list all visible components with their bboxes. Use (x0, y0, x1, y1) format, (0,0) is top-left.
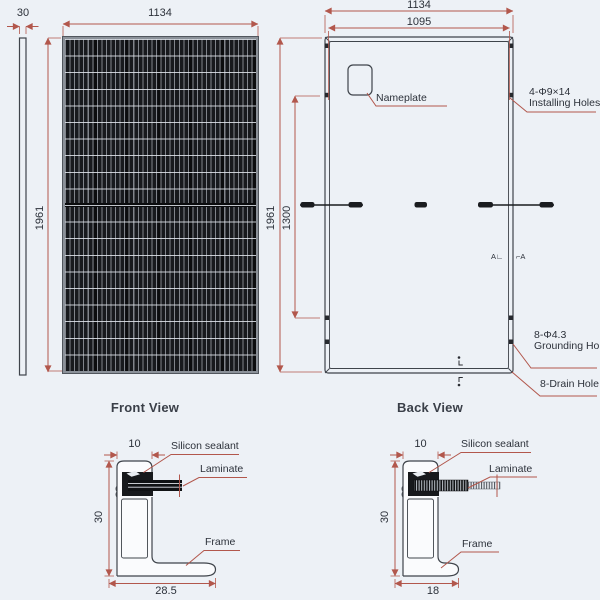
back-hole-span-dim-label: 1095 (369, 16, 469, 28)
section-b-marks (458, 356, 463, 386)
section-left-laminate-label: Laminate (200, 464, 250, 475)
front-width-dim-label: 1134 (110, 7, 210, 19)
hole-marks (325, 44, 513, 345)
section-right-laminate-label: Laminate (489, 464, 539, 475)
section-left-frame-label: Frame (205, 537, 245, 548)
section-right-top-dim-label: 10 (408, 438, 433, 450)
section-right-sealant-label: Silicon sealant (461, 439, 531, 450)
section-left-base-dim-label: 28.5 (141, 585, 191, 597)
section-right-frame-label: Frame (462, 539, 502, 550)
section-right-base-dim-label: 18 (408, 585, 458, 597)
nameplate (348, 65, 372, 95)
front-height-dim-label: 1961 (22, 198, 58, 238)
installing-holes-label-line2: Installing Holes (529, 98, 600, 109)
back-view-frame (325, 37, 513, 386)
drain-hole-label: 8-Drain Hole (540, 379, 600, 390)
section-left-height-dim-label: 30 (81, 497, 117, 537)
section-a-marker-right: ⌐A (516, 251, 536, 262)
section-right-height-dim-label: 30 (367, 497, 403, 537)
back-view-dimensions (280, 11, 513, 372)
back-hole-pitch-dim-label: 1300 (269, 198, 305, 238)
mounting-rail-marks (300, 202, 554, 208)
section-left-top-dim-label: 10 (122, 438, 147, 450)
grounding-holes-label-line2: Grounding Holes (534, 341, 600, 352)
nameplate-label: Nameplate (376, 93, 446, 104)
back-view-caption: Back View (370, 402, 490, 413)
section-a-marker-left: A∟ (491, 251, 511, 262)
front-view-caption: Front View (85, 402, 205, 413)
side-thickness-dim-label: 30 (8, 7, 38, 19)
solar-panel-front-face (63, 37, 258, 373)
section-left-sealant-label: Silicon sealant (171, 441, 241, 452)
back-outer-width-dim-label: 1134 (369, 0, 469, 11)
technical-drawing-page: 30 1134 1961 Front View 1134 1095 1961 1… (0, 0, 600, 600)
